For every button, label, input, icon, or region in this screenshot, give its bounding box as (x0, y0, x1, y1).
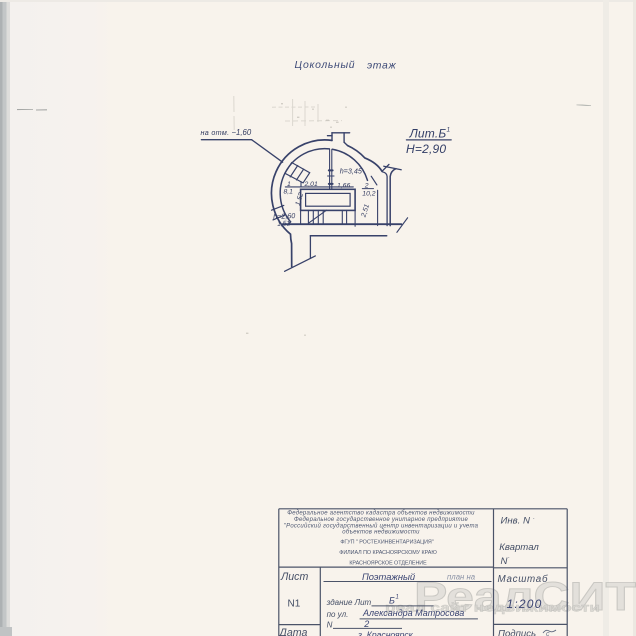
svg-text:КРАСНОЯРСКОЕ ОТДЕЛЕНИЕ: КРАСНОЯРСКОЕ ОТДЕЛЕНИЕ (349, 561, 427, 567)
svg-text:Б: Б (389, 596, 395, 606)
svg-text:N: N (327, 621, 333, 630)
svg-text:этаж: этаж (367, 61, 397, 72)
svg-text:N1: N1 (288, 599, 301, 610)
svg-text:Поэтажный: Поэтажный (362, 571, 416, 582)
svg-text:Цокольный: Цокольный (295, 60, 356, 71)
svg-text:1,66: 1,66 (337, 183, 350, 190)
svg-text:по ул.: по ул. (327, 610, 349, 619)
svg-text:1: 1 (447, 127, 451, 134)
svg-text:здание Лит: здание Лит (326, 598, 372, 607)
svg-text:Масштаб: Масштаб (498, 574, 549, 585)
svg-text:ФИЛИАЛ ПО КРАСНОЯРСКОМУ КРАЮ: ФИЛИАЛ ПО КРАСНОЯРСКОМУ КРАЮ (339, 550, 437, 556)
svg-text:ФГУП " РОСТЕХИНВЕНТАРИЗАЦИЯ": ФГУП " РОСТЕХИНВЕНТАРИЗАЦИЯ" (340, 540, 433, 546)
svg-text:−1,60: −1,60 (232, 128, 252, 137)
svg-text:Александра Матросова: Александра Матросова (362, 608, 464, 618)
svg-text:Квартал: Квартал (499, 542, 539, 553)
svg-text:Н=2,90: Н=2,90 (406, 142, 446, 156)
svg-text:"Российский государственный це: "Российский государственный центр инвент… (284, 523, 479, 530)
svg-text:объектов недвижимости: объектов недвижимости (342, 530, 420, 536)
svg-text:Подпись: Подпись (498, 629, 536, 636)
svg-text:Дата: Дата (278, 627, 307, 636)
svg-text:с: с (546, 631, 550, 636)
svg-text:10,2: 10,2 (362, 191, 375, 198)
svg-text:Лит.Б: Лит.Б (409, 127, 447, 141)
svg-text:Лист: Лист (280, 571, 308, 583)
svg-text:на отм.: на отм. (201, 128, 230, 137)
svg-text:8,1: 8,1 (284, 189, 294, 196)
svg-text:план на: план на (447, 572, 476, 581)
svg-text:Федеральное государственное у: Федеральное государственное унитарное пр… (294, 517, 469, 523)
svg-text:1:200: 1:200 (507, 597, 543, 611)
svg-text:2,01: 2,01 (304, 181, 318, 188)
svg-text:h=3,45: h=3,45 (340, 167, 363, 176)
svg-text:з. Красноярск: з. Красноярск (357, 630, 414, 636)
svg-text:N: N (501, 556, 508, 567)
svg-text:Федеральное агентство кадастра: Федеральное агентство кадастра объектов … (287, 511, 475, 517)
svg-text:1: 1 (287, 181, 291, 188)
svg-text:Инв. N: Инв. N (501, 516, 530, 527)
svg-text:1: 1 (396, 595, 399, 601)
svg-text:2: 2 (363, 619, 369, 629)
